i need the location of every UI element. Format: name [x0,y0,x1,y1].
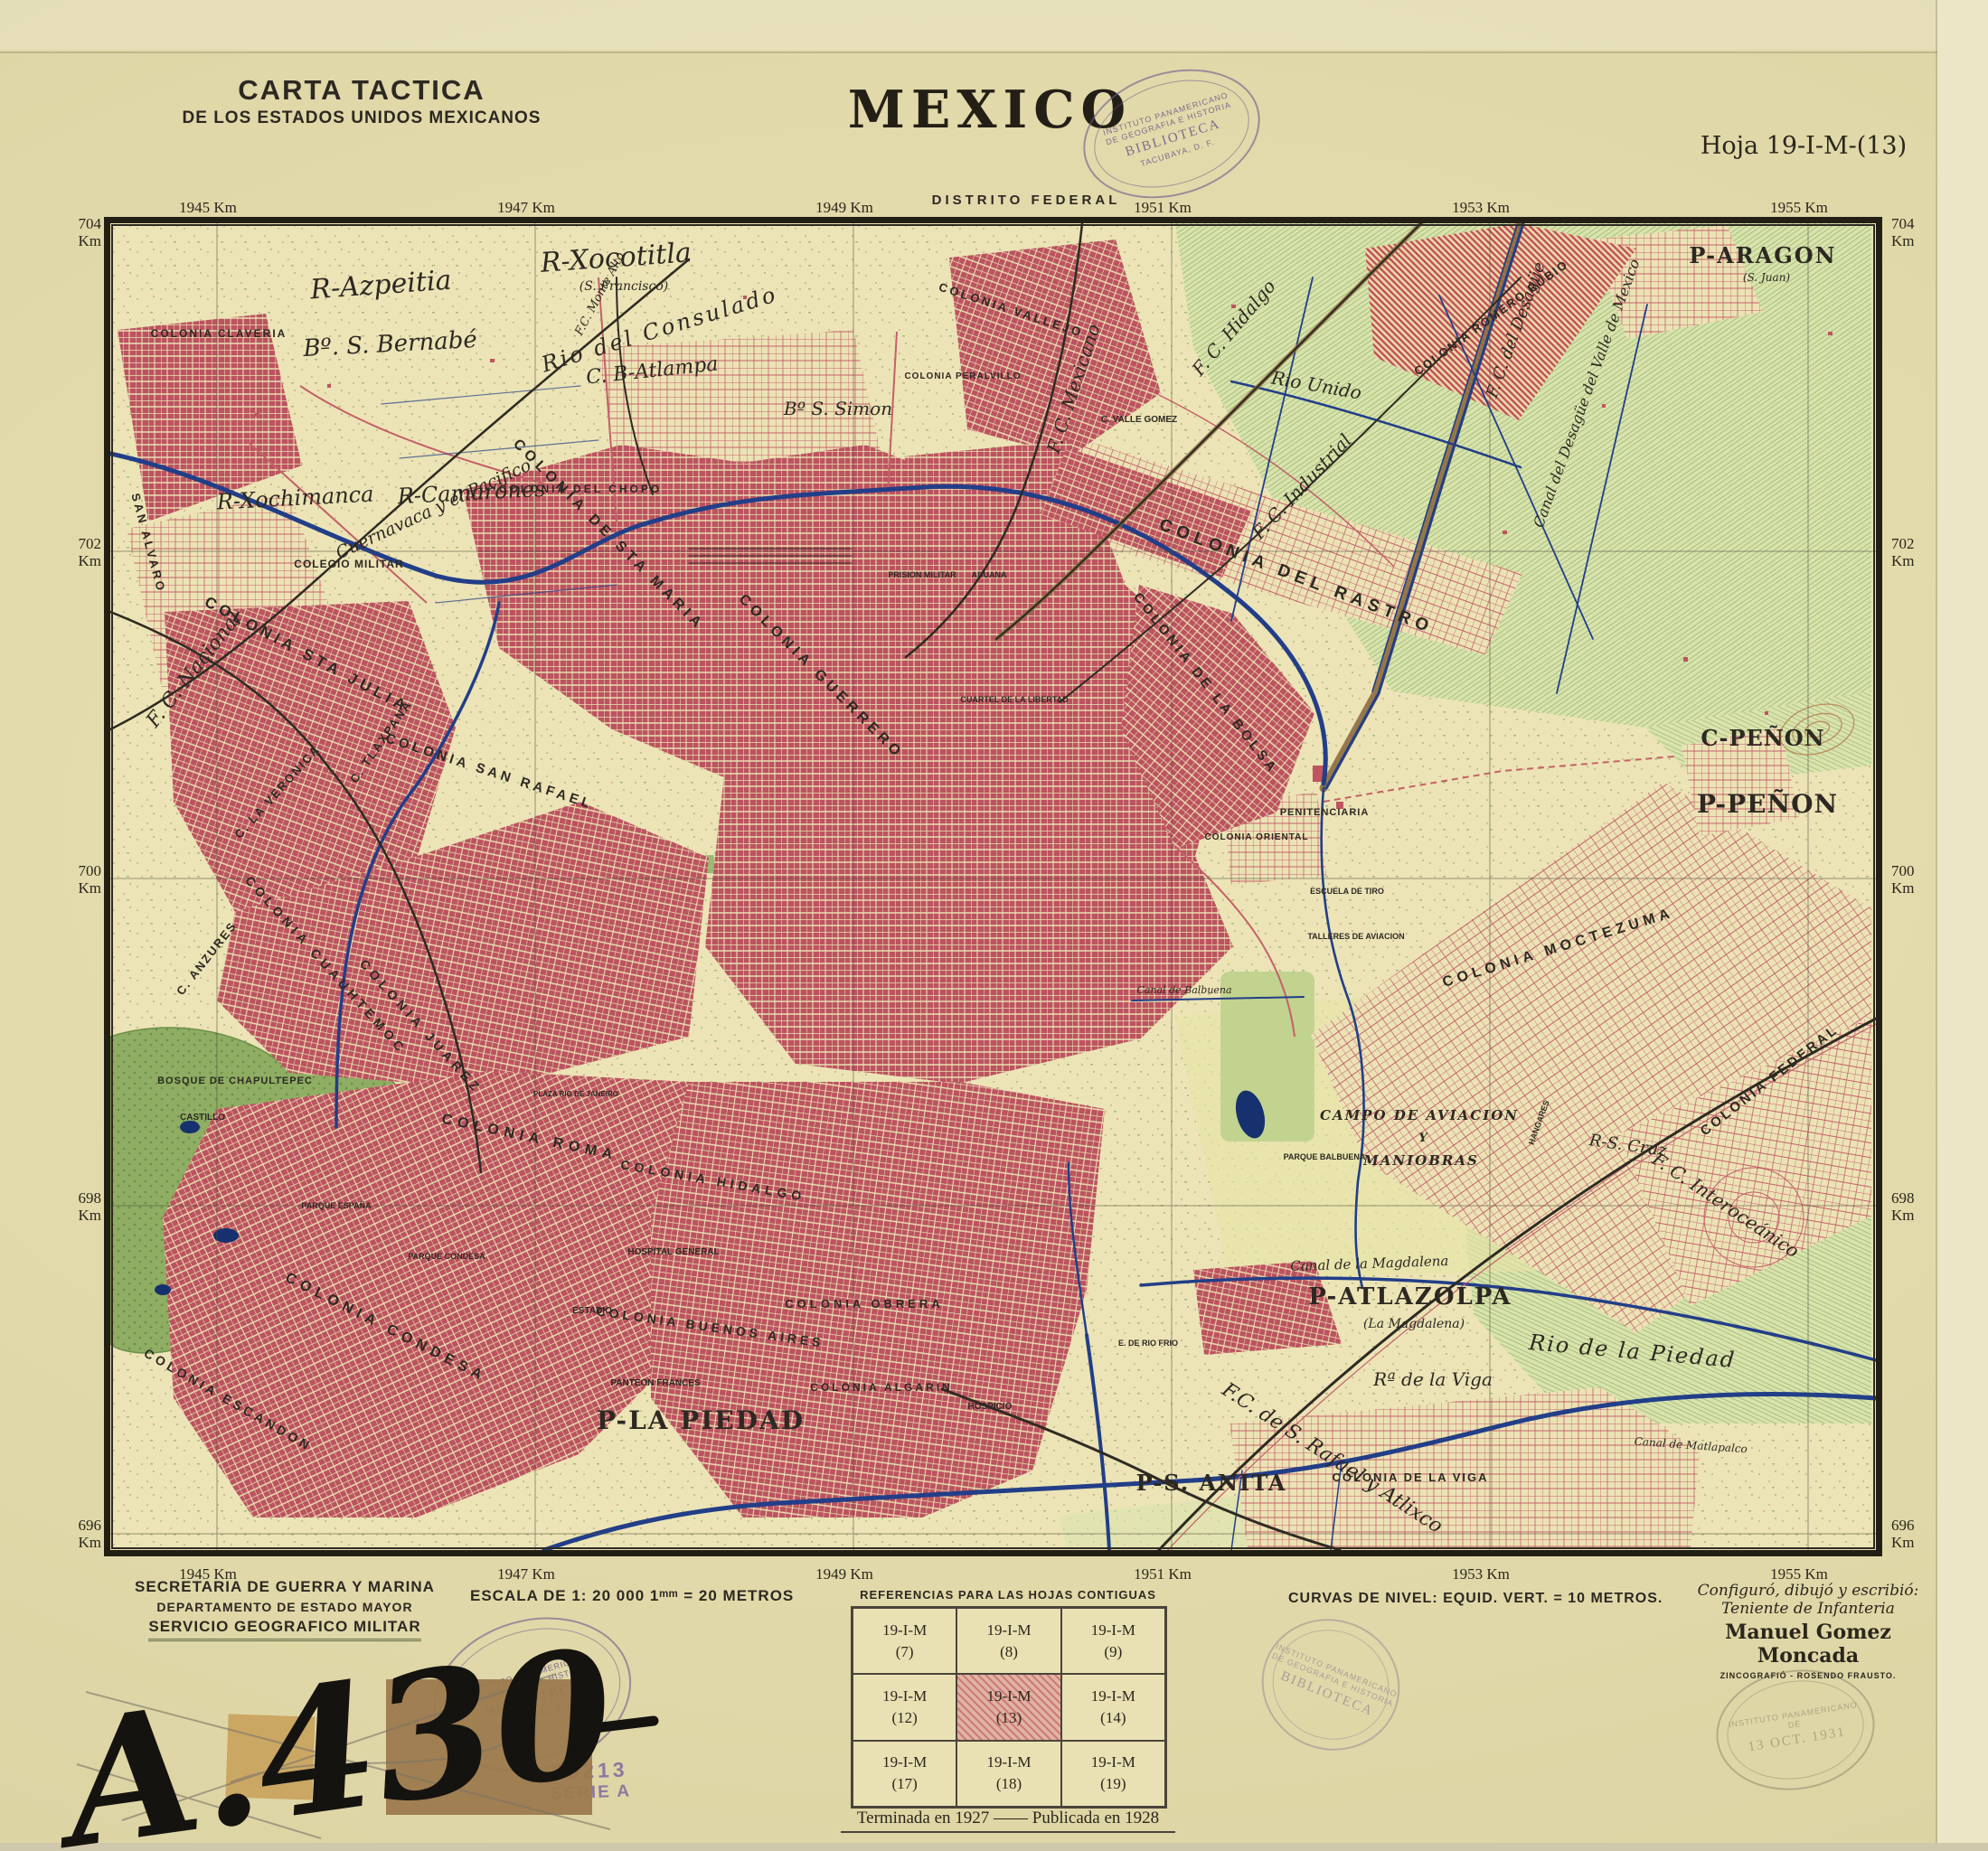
grid-label-right: 698Km [1891,1189,1942,1224]
sheet-cell: 19-I-M(14) [1061,1674,1165,1740]
sheet-cell: 19-I-M(18) [956,1741,1060,1807]
contour-statement: CURVAS DE NIVEL: EQUID. VERT. = 10 METRO… [1288,1591,1713,1607]
map-label: PARQUE CONDESA [408,1252,485,1261]
grid-label-right: 696Km [1891,1517,1942,1551]
map-label: P-PEÑON [1697,789,1838,819]
map-label: COLONIA OBRERA [785,1297,943,1311]
map-label: (La Magdalena) [1363,1317,1465,1331]
grid-label-bottom: 1949 Km [804,1565,885,1583]
map-label: P-S. ANITA [1136,1470,1287,1496]
scale-statement: ESCALA DE 1: 20 000 1ᵐᵐ = 20 METROS [470,1587,850,1605]
map-label: (S. Francisco) [579,279,668,294]
map-label: P-ARAGON [1689,242,1836,268]
handwritten-number: A.430 [50,1638,627,1851]
credits-block: Configuró, dibujó y escribió: Teniente d… [1677,1582,1939,1680]
stamp-text: DE GEOGRAFIA E HISTORIA [1105,100,1232,148]
grid-label-right: 704Km [1891,215,1942,249]
map-label: BOSQUE DE CHAPULTEPEC [157,1076,313,1086]
series-title-line1: CARTA TACTICA [158,74,565,107]
grid-label-top: 1951 Km [1122,199,1203,217]
credits-line3: Manuel Gomez Moncada [1677,1621,1939,1668]
agency-block: SECRETARIA DE GUERRA Y MARINA DEPARTAMEN… [108,1578,461,1641]
grid-label-left: 704Km [51,215,101,249]
sheet-cell: 19-I-M(9) [1061,1608,1165,1674]
map-label: COLONIA ORIENTAL [1205,832,1309,842]
map-label: TALLERES DE AVIACION [1307,932,1404,941]
map-label: P-ATLAZOLPA [1308,1283,1512,1311]
map-label: Canal de Balbuena [1136,984,1231,996]
grid-label-left: 696Km [51,1517,101,1551]
scanned-map-sheet: CARTA TACTICA DE LOS ESTADOS UNIDOS MEXI… [0,0,1988,1851]
sheet-cell: 19-I-M(8) [956,1608,1060,1674]
sheet-number: Hoja 19-I-M-(13) [1677,132,1930,160]
grid-label-left: 702Km [51,535,101,569]
map-label: CUARTEL DE LA LIBERTAD [960,695,1069,704]
map-label: C. VALLE GOMEZ [1101,415,1177,425]
sheet-cell: 19-I-M(19) [1061,1741,1165,1807]
sheet-cell: 19-I-M(17) [853,1741,956,1807]
library-stamp-partial: INSTITUTO PANAMERICANO DE GEOGRAFIA E HI… [1242,1598,1420,1771]
map-label: PANTEON FRANCES [610,1378,701,1388]
grid-label-bottom: 1951 Km [1122,1565,1203,1583]
map-label: PENITENCIARIA [1280,807,1370,818]
map-label: COLONIA DE LA VIGA [1333,1470,1489,1484]
references-title: REFERENCIAS PARA LAS HOJAS CONTIGUAS [841,1588,1175,1602]
grid-label-left: 698Km [51,1189,101,1224]
map-label: Bº S. Simon [783,398,892,419]
map-label: P-LA PIEDAD [597,1405,805,1435]
map-label: CASTILLO [180,1113,225,1123]
series-title-line2: DE LOS ESTADOS UNIDOS MEXICANOS [158,108,565,128]
grid-label-top: 1947 Km [485,199,567,217]
map-label: ESCUELA DE TIRO [1310,887,1384,896]
map-label: COLEGIO MILITAR [294,558,403,570]
grid-label-bottom: 1947 Km [485,1565,567,1583]
map-label: (S. Juan) [1743,271,1791,284]
map-label: E. DE RIO FRIO [1118,1339,1178,1348]
grid-label-right: 700Km [1891,862,1942,897]
adjoining-sheets-table: 19-I-M(7) 19-I-M(8) 19-I-M(9) 19-I-M(12)… [851,1606,1167,1809]
grid-label-top: 1953 Km [1440,199,1522,217]
map-subtitle: DISTRITO FEDERAL [922,193,1130,208]
map-label: HOSPITAL GENERAL [627,1247,719,1257]
grid-label-top: 1955 Km [1758,199,1840,217]
map-label: ADUANA [972,570,1007,579]
credits-line2: Teniente de Infanteria [1677,1600,1939,1618]
map-label: MANIOBRAS [1362,1152,1479,1169]
credits-line1: Configuró, dibujó y escribió: [1677,1582,1939,1600]
grid-label-top: 1949 Km [804,199,885,217]
agency-line2: DEPARTAMENTO DE ESTADO MAYOR [108,1600,461,1614]
stamp-text: TACUBAYA, D. F. [1139,137,1216,169]
map-label: Rª de la Viga [1372,1368,1493,1390]
publication-dates: Terminada en 1927 —— Publicada en 1928 [841,1809,1175,1833]
sheet-cell: 19-I-M(12) [853,1674,956,1740]
grid-label-bottom: 1955 Km [1758,1565,1840,1583]
map-label: COLONIA DEL CHOPO [499,483,662,495]
map-canvas: R-AzpeitiaR-Xocotitla(S. Francisco)Bº. S… [110,223,1876,1550]
grid-label-top: 1945 Km [167,199,249,217]
handwritten-annotation: A.430 [50,1638,683,1851]
stamp-text: INSTITUTO PANAMERICANO [1102,90,1230,138]
paper-edge-right [1937,0,1988,1851]
sheet-cell-current: 19-I-M(13) [956,1674,1060,1740]
map-label: PARQUE BALBUENA [1284,1152,1366,1161]
map-label: CAMPO DE AVIACION [1320,1107,1519,1123]
map-label: C-PEÑON [1701,725,1824,751]
grid-label-left: 700Km [51,862,101,897]
map-label: PARQUE ESPAÑA [301,1201,372,1210]
map-label: COLONIA PERALVILLO [904,371,1021,381]
map-label: PLAZA RIO DE JANEIRO [533,1090,618,1098]
map-label: COLONIA CLAVERIA [151,327,287,340]
sheet-cell: 19-I-M(7) [853,1608,956,1674]
map-frame: R-AzpeitiaR-Xocotitla(S. Francisco)Bº. S… [104,217,1882,1556]
map-label: COLONIA ALGARIN [810,1381,952,1394]
paper-seam-right [1936,0,1937,1851]
paper-seam [0,52,1988,53]
grid-label-right: 702Km [1891,535,1942,569]
series-title: CARTA TACTICA DE LOS ESTADOS UNIDOS MEXI… [158,74,565,128]
stamp-text: BIBLIOTECA [1124,117,1222,160]
agency-line1: SECRETARIA DE GUERRA Y MARINA [108,1578,461,1596]
map-label: PRISION MILITAR [888,570,956,579]
map-label: HOSPICIO [968,1402,1013,1412]
grid-label-bottom: 1953 Km [1440,1565,1522,1583]
